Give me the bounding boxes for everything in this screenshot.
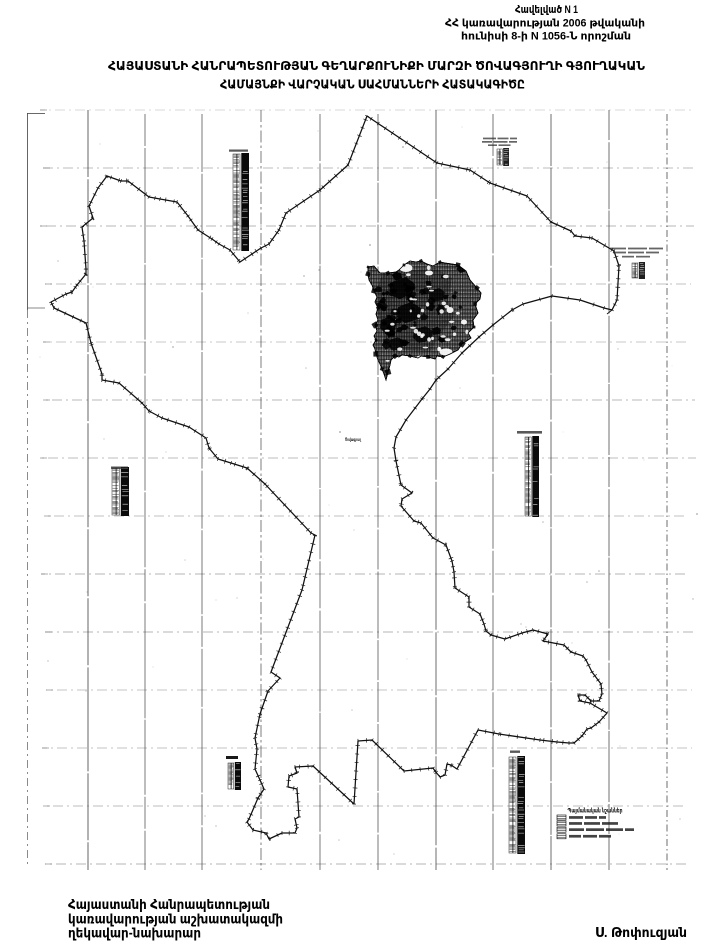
svg-text:ղեկավար-նախարար: ղեկավար-նախարար — [68, 926, 201, 941]
svg-text:կառավարության աշխատակազմի: կառավարության աշխատակազմի — [68, 912, 283, 927]
svg-text:ՀԱՄԱՅՆՔԻ ՎԱՐՉԱԿԱՆ ՍԱՀՄԱՆՆԵՐԻ: ՀԱՄԱՅՆՔԻ ՎԱՐՉԱԿԱՆ ՍԱՀՄԱՆՆԵՐԻ ՀԱՏԱԿԱԳԻԾԸ — [220, 78, 525, 92]
svg-text:Ծովագյուղ: Ծովագյուղ — [345, 437, 361, 442]
svg-text:ՀՀ կառավարության 2006 թվականի: ՀՀ կառավարության 2006 թվականի — [445, 18, 645, 30]
svg-text:ՀԱՅԱՍՏԱՆԻ ՀԱՆՐԱՊԵՏՈՒԹՅԱՆ ԳԵՂԱՐ: ՀԱՅԱՍՏԱՆԻ ՀԱՆՐԱՊԵՏՈՒԹՅԱՆ ԳԵՂԱՐՔՈՒՆԻՔԻ ՄԱ… — [108, 59, 645, 73]
svg-text:Ս. Թոփուզյան: Ս. Թոփուզյան — [595, 925, 687, 940]
svg-text:հունիսի 8-ի N 1056-Ն որոշման: հունիսի 8-ի N 1056-Ն որոշման — [461, 31, 631, 43]
svg-text:Հավելված N 1: Հավելված N 1 — [515, 4, 578, 16]
svg-text:Հայաստանի Հանրապետության: Հայաստանի Հանրապետության — [68, 897, 270, 912]
svg-text:Պայմանական նշաններ: Պայմանական նշաններ — [568, 809, 623, 815]
